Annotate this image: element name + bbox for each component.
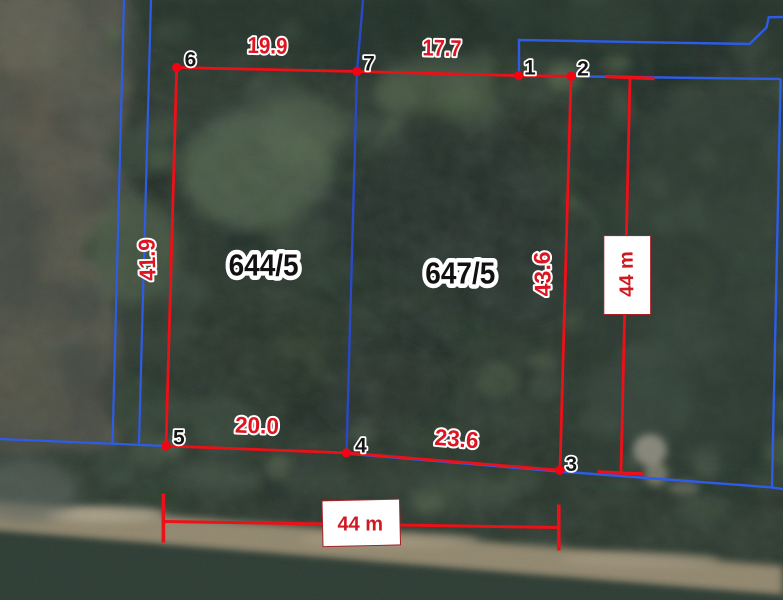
svg-text:44 m: 44 m — [615, 251, 638, 297]
svg-text:17.7: 17.7 — [422, 34, 462, 61]
svg-text:6: 6 — [185, 48, 197, 71]
svg-text:7: 7 — [363, 52, 375, 75]
svg-text:44 m: 44 m — [338, 514, 384, 536]
svg-text:1: 1 — [524, 57, 536, 80]
svg-text:41.9: 41.9 — [133, 239, 160, 282]
svg-text:4: 4 — [355, 434, 367, 457]
svg-text:43.6: 43.6 — [529, 251, 556, 297]
svg-text:3: 3 — [565, 453, 577, 476]
svg-text:20.0: 20.0 — [235, 411, 280, 439]
svg-text:23.6: 23.6 — [434, 424, 480, 454]
svg-text:5: 5 — [173, 427, 185, 450]
svg-text:2: 2 — [577, 57, 589, 80]
svg-text:19.9: 19.9 — [247, 32, 288, 59]
svg-text:647/5: 647/5 — [425, 256, 495, 291]
svg-text:644/5: 644/5 — [229, 248, 299, 283]
